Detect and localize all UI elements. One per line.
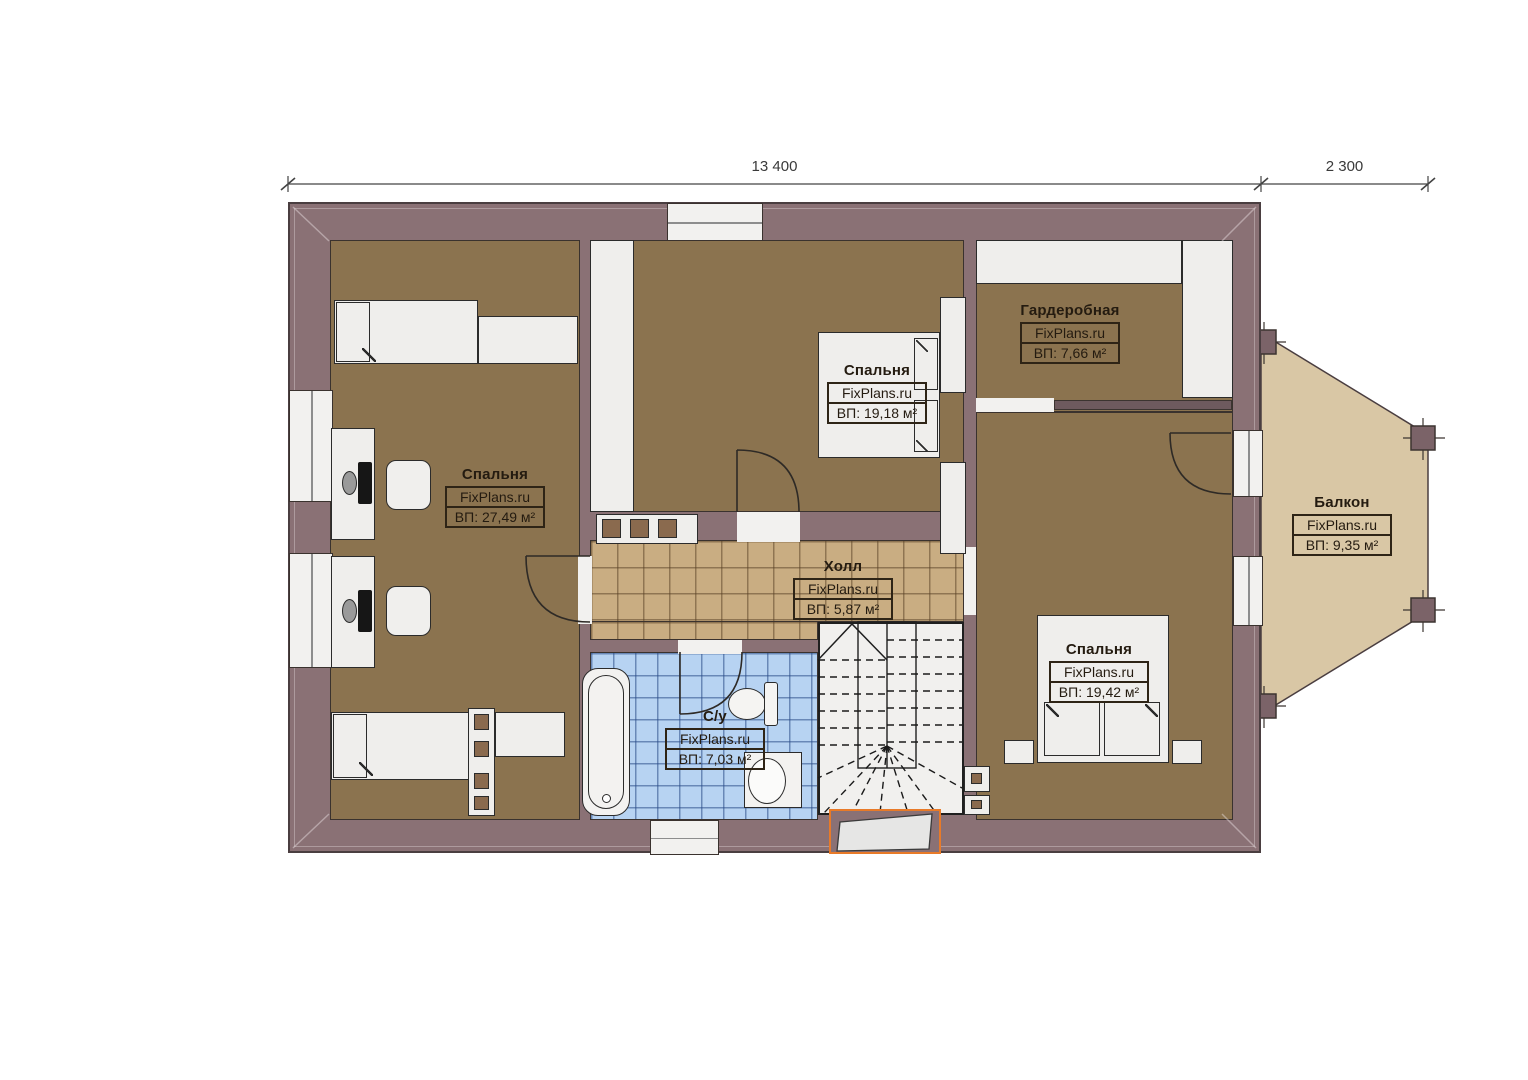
shelf-cell bbox=[474, 773, 489, 789]
window-top bbox=[667, 203, 763, 241]
dimension-label-balcony: 2 300 bbox=[1261, 158, 1428, 175]
dimension-label-main: 13 400 bbox=[288, 158, 1261, 175]
monitor-icon bbox=[358, 590, 372, 632]
shelf-cell bbox=[474, 714, 489, 730]
monitor-stand bbox=[342, 599, 357, 623]
floor-plan-canvas: 13 400 2 300 Спальня FixPlans.ru ВП: 27,… bbox=[0, 0, 1528, 1080]
brand-text: FixPlans.ru bbox=[1294, 516, 1390, 536]
sink-bowl bbox=[748, 758, 786, 804]
nightstand-top bbox=[940, 297, 966, 393]
door-opening-bathroom bbox=[678, 640, 742, 654]
door-opening-bedroom-left bbox=[578, 556, 592, 624]
room-info-box: FixPlans.ru ВП: 9,35 м² bbox=[1292, 514, 1392, 556]
pillow-fold bbox=[1145, 704, 1158, 717]
room-floor-hall-lower bbox=[590, 622, 818, 640]
nightstand-right bbox=[1172, 740, 1202, 764]
window-bottom bbox=[650, 820, 719, 855]
sliding-door-opening-wardrobe bbox=[976, 398, 1054, 412]
toilet bbox=[728, 688, 766, 720]
balcony-floor bbox=[1261, 333, 1428, 714]
bathtub bbox=[582, 668, 630, 816]
stair-shaft-box-1 bbox=[964, 766, 990, 792]
balcony-posts bbox=[1252, 330, 1435, 718]
balcony-door-right-wall bbox=[1233, 430, 1263, 497]
toilet-tank bbox=[764, 682, 778, 726]
window-right bbox=[1233, 556, 1263, 626]
room-name: Балкон bbox=[1314, 494, 1369, 511]
dimension-value: 2 300 bbox=[1326, 158, 1364, 175]
room-label-balcony: Балкон FixPlans.ru ВП: 9,35 м² bbox=[1286, 494, 1398, 556]
monitor-icon bbox=[358, 462, 372, 504]
closet-column bbox=[590, 240, 634, 512]
desk-chair-1 bbox=[386, 460, 431, 510]
shelf-cell bbox=[474, 741, 489, 757]
wardrobe-shelf-top bbox=[976, 240, 1182, 284]
wardrobe-shelf-right bbox=[1182, 240, 1233, 398]
niche-square-2 bbox=[630, 519, 649, 538]
shelf-cell bbox=[474, 796, 489, 810]
pillow-fold bbox=[916, 440, 928, 452]
balcony-post-ticks bbox=[1244, 322, 1445, 728]
room-floor-hall bbox=[590, 540, 964, 622]
sliding-door-leaf-wardrobe bbox=[1054, 400, 1232, 410]
blanket-fold bbox=[359, 762, 373, 776]
window-left-lower bbox=[289, 553, 333, 668]
dimension-value: 13 400 bbox=[752, 158, 798, 175]
blanket-fold bbox=[362, 348, 376, 362]
pillow-fold bbox=[1046, 704, 1059, 717]
room-area: ВП: 9,35 м² bbox=[1294, 536, 1390, 554]
nightstand-left bbox=[1004, 740, 1034, 764]
dresser bbox=[495, 712, 565, 757]
dimension-lines bbox=[281, 176, 1435, 192]
staircase bbox=[818, 622, 964, 815]
door-opening-bedroom-middle bbox=[737, 512, 800, 542]
desk-chair-2 bbox=[386, 586, 431, 636]
niche-square-3 bbox=[658, 519, 677, 538]
wardrobe-cabinet bbox=[478, 316, 578, 364]
stair-shaft-box-2 bbox=[964, 795, 990, 815]
pillow-fold bbox=[916, 340, 928, 352]
window-left-upper bbox=[289, 390, 333, 502]
monitor-stand bbox=[342, 471, 357, 495]
niche-square-1 bbox=[602, 519, 621, 538]
door-opening-hall-bedroom-right bbox=[964, 547, 976, 615]
nightstand-bottom bbox=[940, 462, 966, 554]
